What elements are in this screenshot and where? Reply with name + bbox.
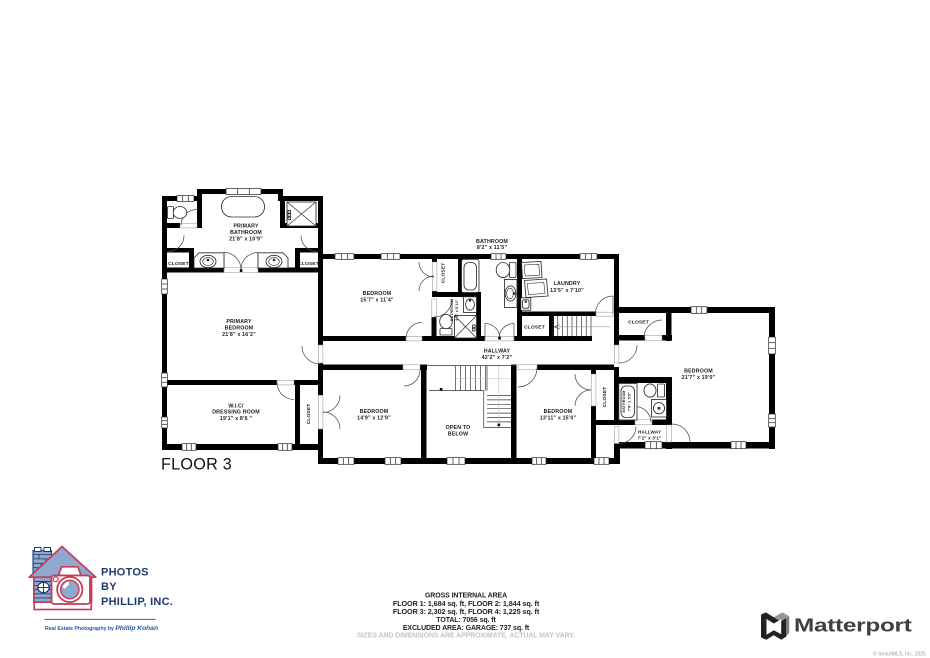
svg-text:PHOTOS: PHOTOS — [101, 566, 149, 578]
svg-text:PRIMARY: PRIMARY — [233, 224, 259, 230]
svg-text:7’2” x 3’1”: 7’2” x 3’1” — [637, 436, 661, 441]
svg-text:SIZES AND DIMENSIONS ARE APPRO: SIZES AND DIMENSIONS ARE APPROXIMATE, AC… — [357, 633, 575, 640]
svg-text:13’5” x 7’10”: 13’5” x 7’10” — [550, 288, 584, 294]
svg-text:42’2” x 7’2”: 42’2” x 7’2” — [482, 355, 513, 361]
svg-text:8’2” x 11’5”: 8’2” x 11’5” — [477, 245, 508, 251]
svg-text:TOTAL: 7056 sq. ft: TOTAL: 7056 sq. ft — [436, 617, 496, 624]
svg-text:Matterport: Matterport — [794, 615, 912, 635]
svg-text:CLOSET: CLOSET — [628, 320, 649, 326]
svg-text:BEDROOM: BEDROOM — [684, 368, 713, 374]
svg-text:LAUNDRY: LAUNDRY — [554, 281, 581, 287]
svg-text:15’7” x 11’4”: 15’7” x 11’4” — [360, 297, 394, 303]
svg-text:14’9” x 12’9”: 14’9” x 12’9” — [357, 415, 391, 421]
svg-text:BELOW: BELOW — [448, 431, 468, 437]
svg-text:FLOOR 3: FLOOR 3 — [161, 456, 232, 474]
svg-text:EXCLUDED AREA: GARAGE: 737 sq.: EXCLUDED AREA: GARAGE: 737 sq. ft — [403, 625, 530, 632]
svg-text:BATHROOM: BATHROOM — [476, 239, 508, 245]
svg-text:BATHROOM: BATHROOM — [622, 390, 626, 412]
svg-text:BY: BY — [101, 581, 117, 593]
svg-text:7’8” x 5’9”: 7’8” x 5’9” — [628, 392, 632, 411]
svg-text:PRIMARY: PRIMARY — [226, 319, 252, 325]
svg-text:21’7” x 19’0”: 21’7” x 19’0” — [682, 375, 716, 381]
svg-text:CLOSET: CLOSET — [441, 263, 447, 284]
svg-text:BEDROOM: BEDROOM — [360, 409, 389, 415]
svg-text:19’1” x 8’6 ”: 19’1” x 8’6 ” — [220, 416, 252, 422]
svg-text:BEDROOM: BEDROOM — [363, 291, 392, 297]
svg-text:DRESSING ROOM: DRESSING ROOM — [212, 410, 260, 416]
svg-text:OPEN TO: OPEN TO — [446, 425, 471, 431]
svg-text:CLOSET: CLOSET — [524, 325, 545, 331]
svg-text:21’8” x 16’2”: 21’8” x 16’2” — [222, 332, 256, 338]
svg-text:CLOSET: CLOSET — [602, 387, 608, 408]
svg-text:CLOSET: CLOSET — [168, 261, 189, 267]
svg-text:BEDROOM: BEDROOM — [544, 409, 573, 415]
svg-text:Real Estate Photography by Phi: Real Estate Photography by Phillip Kohan — [45, 625, 158, 632]
svg-text:21’8” x 10’9”: 21’8” x 10’9” — [229, 237, 263, 243]
svg-text:HALLWAY: HALLWAY — [484, 348, 511, 354]
svg-text:CLOSET: CLOSET — [298, 261, 319, 267]
svg-text:PHILLIP, INC.: PHILLIP, INC. — [101, 596, 173, 608]
svg-text:BATHROOM: BATHROOM — [230, 230, 262, 236]
svg-text:BEDROOM: BEDROOM — [225, 326, 254, 332]
svg-text:13’11” x 15’0”: 13’11” x 15’0” — [540, 415, 577, 421]
svg-text:HALLWAY: HALLWAY — [638, 429, 661, 434]
svg-text:BATHROOM: BATHROOM — [450, 299, 454, 321]
svg-text:CLOSET: CLOSET — [306, 404, 312, 425]
svg-text:W.I.C/: W.I.C/ — [228, 403, 244, 409]
svg-text:© SmartMLS, Inc. 2025: © SmartMLS, Inc. 2025 — [873, 651, 926, 658]
svg-text:4’1” x 5’10”: 4’1” x 5’10” — [455, 299, 459, 320]
svg-text:FLOOR 3: 2,302 sq. ft, FLOOR 4: FLOOR 3: 2,302 sq. ft, FLOOR 4: 1,225 sq… — [393, 607, 540, 616]
